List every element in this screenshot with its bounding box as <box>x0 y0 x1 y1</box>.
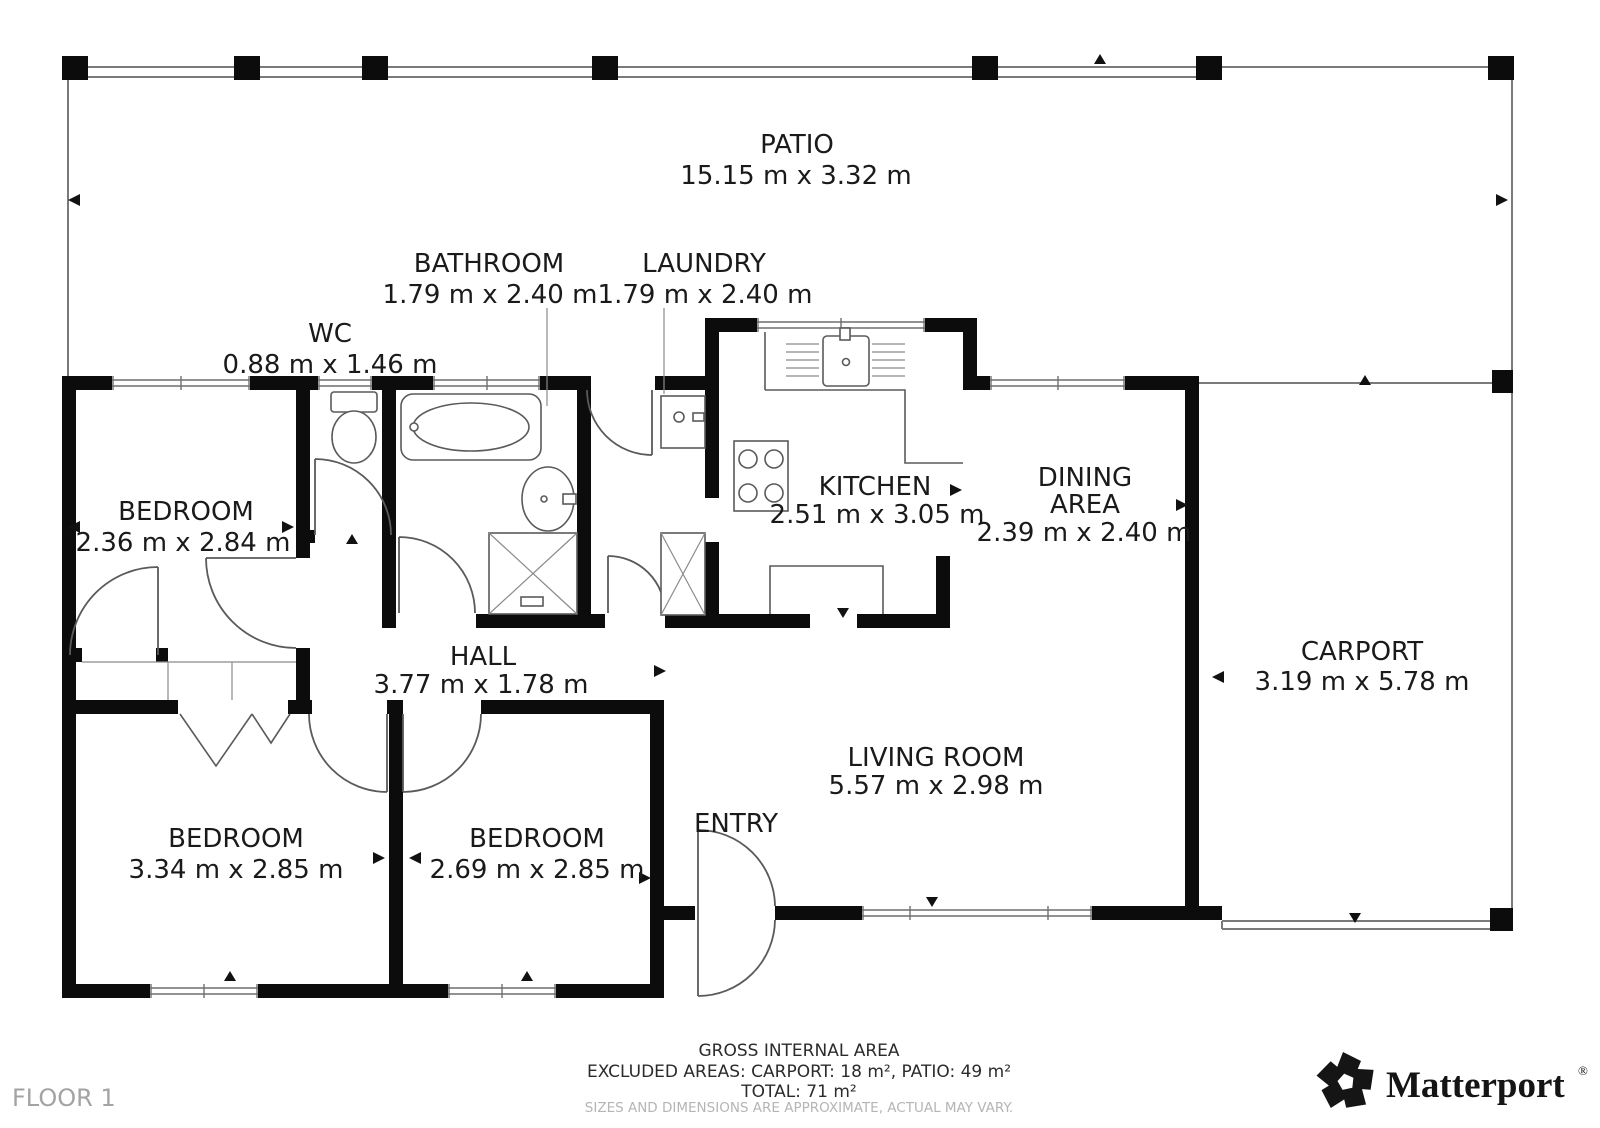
room-dims-hall: 3.77 m x 1.78 m <box>374 670 589 700</box>
room-dims-kitchen: 2.51 m x 3.05 m <box>770 500 985 530</box>
kitchen-sink-fixture <box>786 328 905 386</box>
room-dims-bedroom-mid: 2.69 m x 2.85 m <box>430 855 645 885</box>
total-area-text: TOTAL: 71 m² <box>740 1082 856 1102</box>
room-dims-living: 5.57 m x 2.98 m <box>829 771 1044 801</box>
room-dims-dining: 2.39 m x 2.40 m <box>977 518 1192 548</box>
room-dims-bedroom-left: 3.34 m x 2.85 m <box>129 855 344 885</box>
floor-plan-svg: PATIO 15.15 m x 3.32 m BATHROOM 1.79 m x… <box>0 0 1600 1128</box>
gross-internal-area-heading: GROSS INTERNAL AREA <box>698 1041 899 1061</box>
window <box>990 376 1125 390</box>
room-label-bathroom: BATHROOM <box>414 249 564 279</box>
bathtub-fixture <box>401 394 541 460</box>
room-labels: PATIO 15.15 m x 3.32 m BATHROOM 1.79 m x… <box>76 130 1470 885</box>
brand-logo: Matterport ® <box>1314 1052 1588 1115</box>
room-label-laundry: LAUNDRY <box>642 249 766 279</box>
room-dims-bathroom: 1.79 m x 2.40 m <box>383 280 598 310</box>
room-label-patio: PATIO <box>760 130 834 160</box>
shower-fixture <box>489 533 577 614</box>
room-label-bedroom-top: BEDROOM <box>118 497 254 527</box>
window <box>448 984 556 998</box>
room-label-bedroom-left: BEDROOM <box>168 824 304 854</box>
matterport-pinwheel-icon <box>1314 1052 1379 1115</box>
room-label-carport: CARPORT <box>1301 637 1423 667</box>
wc-door-arc <box>315 459 391 535</box>
window <box>433 376 540 390</box>
footer-area-summary: GROSS INTERNAL AREA EXCLUDED AREAS: CARP… <box>585 1041 1013 1116</box>
kitchen-base-cabinet <box>770 566 883 614</box>
excluded-areas-text: EXCLUDED AREAS: CARPORT: 18 m², PATIO: 4… <box>587 1062 1011 1082</box>
toilet-fixture <box>331 392 377 463</box>
room-label-dining-line1: DINING <box>1038 463 1132 493</box>
bedroom-top-closet-door-arc <box>70 567 158 655</box>
walls <box>62 318 1222 998</box>
room-dims-laundry: 1.79 m x 2.40 m <box>598 280 813 310</box>
bedroom-left-door-arc <box>309 714 387 792</box>
room-label-bedroom-mid: BEDROOM <box>469 824 605 854</box>
laundry-patio-door-arc <box>587 390 652 455</box>
leader-lines <box>547 308 664 406</box>
closet-bifold-doors <box>180 714 290 766</box>
room-label-kitchen: KITCHEN <box>819 472 932 502</box>
window <box>150 984 258 998</box>
windows <box>112 318 1125 998</box>
bedroom-top-door-arc <box>206 558 296 648</box>
room-dims-wc: 0.88 m x 1.46 m <box>223 350 438 380</box>
floor-number-label: FLOOR 1 <box>12 1084 116 1112</box>
entry-double-door-arcs <box>698 830 775 996</box>
room-label-dining-line2: AREA <box>1050 490 1120 520</box>
room-dims-patio: 15.15 m x 3.32 m <box>680 161 911 191</box>
room-dims-bedroom-top: 2.36 m x 2.84 m <box>76 528 291 558</box>
laundry-tub-fixture <box>661 396 705 448</box>
window <box>862 906 1092 920</box>
registered-trademark-symbol: ® <box>1578 1063 1588 1078</box>
room-label-hall: HALL <box>450 642 517 672</box>
closet-partitions <box>82 662 296 700</box>
basin-fixture <box>522 467 576 531</box>
bathroom-door-arc <box>399 537 475 613</box>
laundry-hall-door-arc <box>608 556 665 613</box>
floor-plan-page: PATIO 15.15 m x 3.32 m BATHROOM 1.79 m x… <box>0 0 1600 1128</box>
brand-logo-text: Matterport <box>1386 1065 1565 1106</box>
bedroom-mid-door-arc <box>403 714 481 792</box>
room-label-entry: ENTRY <box>694 809 778 839</box>
room-label-wc: WC <box>308 319 352 349</box>
disclaimer-text: SIZES AND DIMENSIONS ARE APPROXIMATE, AC… <box>585 1100 1013 1116</box>
washer-fixture <box>661 533 705 615</box>
room-label-living: LIVING ROOM <box>848 743 1025 773</box>
room-dims-carport: 3.19 m x 5.78 m <box>1255 667 1470 697</box>
